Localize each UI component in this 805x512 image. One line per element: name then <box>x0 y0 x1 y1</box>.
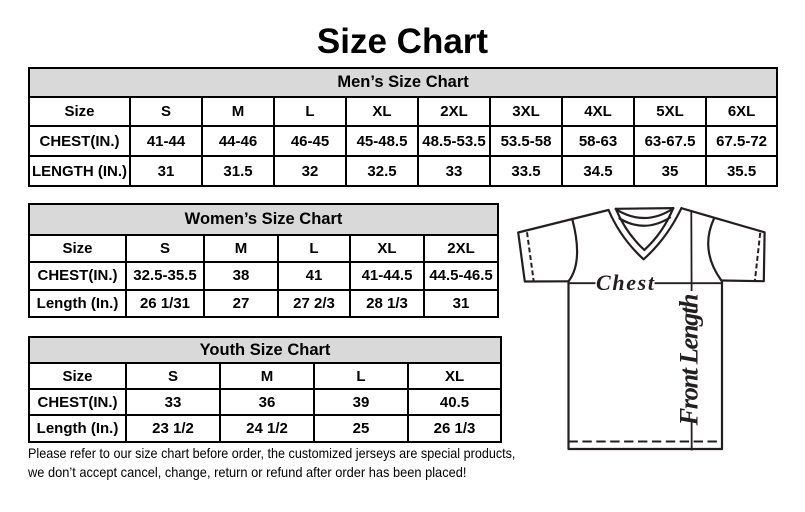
svg-text:Front Length: Front Length <box>674 294 704 427</box>
svg-text:Chest: Chest <box>596 270 655 295</box>
